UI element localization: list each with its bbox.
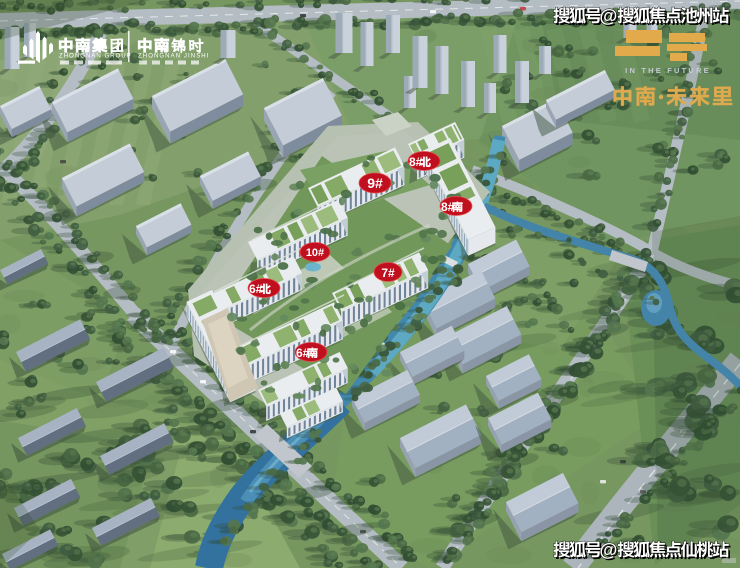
svg-text:ZHONGNAN GROUP: ZHONGNAN GROUP <box>59 54 132 60</box>
svg-text:9#: 9# <box>367 175 383 191</box>
svg-text:8#: 8# <box>409 155 423 169</box>
svg-text:ZHONGNAN JINSHI: ZHONGNAN JINSHI <box>138 54 210 60</box>
svg-text:7#: 7# <box>381 266 395 280</box>
svg-text:IN THE FUTURE: IN THE FUTURE <box>625 66 711 75</box>
svg-text:8#: 8# <box>441 200 455 214</box>
svg-text:6#: 6# <box>249 282 263 296</box>
svg-text:10#: 10# <box>306 247 324 259</box>
svg-text:@: @ <box>599 5 617 26</box>
svg-text:@: @ <box>599 539 617 560</box>
svg-text:6#: 6# <box>296 346 310 360</box>
